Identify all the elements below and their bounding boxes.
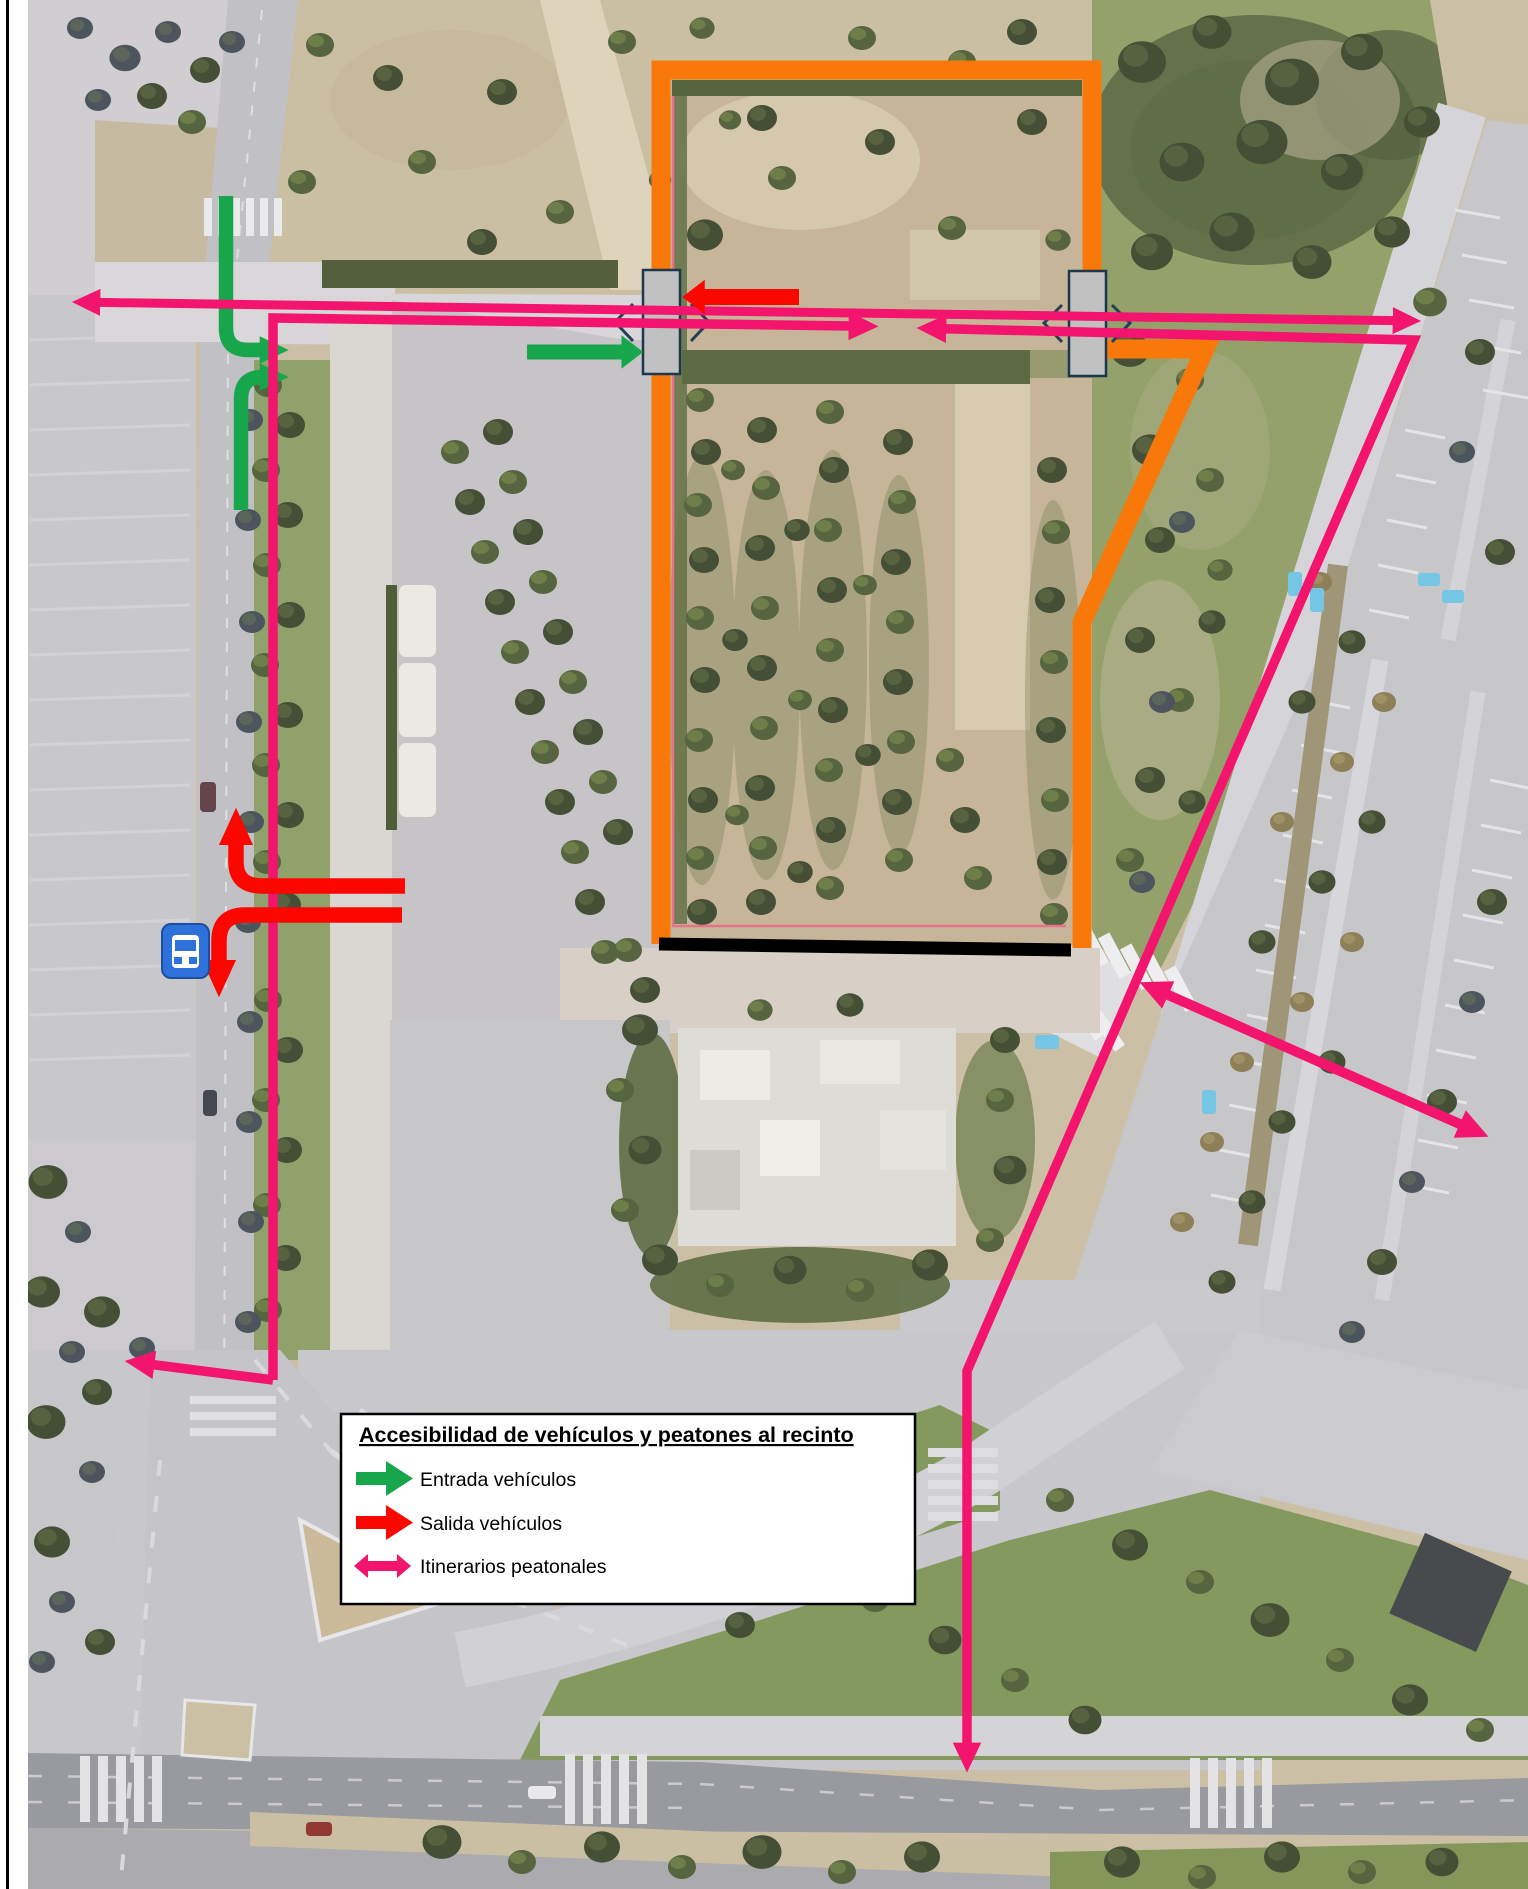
svg-text:Salida vehículos: Salida vehículos — [420, 1513, 562, 1535]
svg-text:Itinerarios peatonales: Itinerarios peatonales — [420, 1556, 607, 1578]
svg-text:Entrada vehículos: Entrada vehículos — [420, 1469, 576, 1491]
svg-text:Accesibilidad de vehículos y p: Accesibilidad de vehículos y peatones al… — [359, 1423, 854, 1447]
